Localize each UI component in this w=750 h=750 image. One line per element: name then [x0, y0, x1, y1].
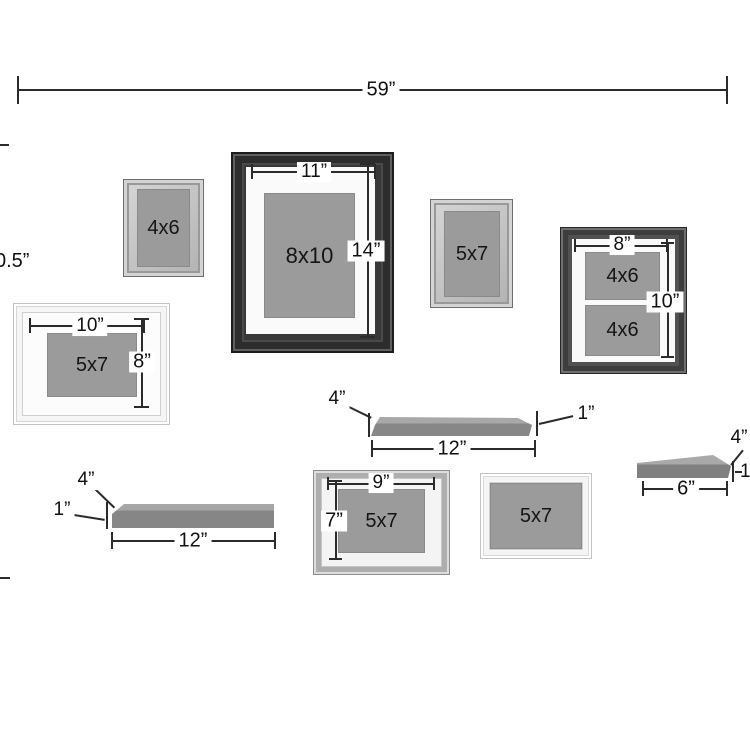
frame-size-label: 5x7 [520, 505, 552, 528]
dim-8in-left-label: 8” [129, 352, 155, 373]
shelf-middle-thickness-leader [539, 415, 574, 425]
shelf-bottom-left-depth-leader [94, 488, 115, 508]
photo-5x7-white-left: 5x7 [47, 333, 137, 397]
overall-width-left-tick [17, 76, 19, 104]
left-edge-cut-tick-upper [0, 144, 9, 146]
dim-9in-label: 9” [369, 473, 394, 493]
shelf-right-depth-label: 4” [727, 428, 750, 448]
shelf-bottom-left-depth-label: 4” [74, 470, 99, 490]
frame-5x7-middle: 5x7 [430, 199, 513, 308]
photo-5x7-gray-bottom: 5x7 [338, 489, 425, 553]
dim-10in-double-bottom-tick [661, 356, 674, 358]
frame-size-label: 5x7 [365, 510, 397, 533]
photo-5x7-middle: 5x7 [444, 211, 500, 297]
dim-8in-left-top-tick [134, 318, 149, 320]
shelf-bottom-left-length-tick-a [111, 532, 113, 549]
shelf-bottom-left-tick [106, 502, 108, 529]
photo-4x6-lower: 4x6 [585, 305, 660, 356]
dim-14in-label: 14” [348, 241, 385, 262]
dim-7in-label: 7” [321, 511, 347, 532]
shelf-right-length-tick-a [642, 481, 644, 496]
shelf-right-thickness-label: 1” [740, 462, 750, 482]
shelf-middle-thickness-label: 1” [574, 404, 599, 424]
shelf-middle-depth-label: 4” [325, 389, 350, 409]
frame-5x7-white-bottom: 5x7 [480, 473, 592, 559]
dim-8in-left-bottom-tick [134, 406, 149, 408]
dim-11in-label: 11” [297, 162, 331, 182]
dim-11in-left-tick [251, 164, 253, 179]
dim-7in-bottom-tick [329, 558, 342, 560]
frame-size-label: 5x7 [76, 354, 108, 377]
shelf-bottom-left-length-label: 12” [175, 531, 212, 552]
shelf-bottom-left-thickness-label: 1” [50, 500, 75, 520]
shelf-right-length-tick-b [726, 481, 728, 496]
dim-9in-tick-b [433, 477, 435, 490]
photo-8x10: 8x10 [264, 193, 355, 318]
shelf-middle-depth-leader [347, 405, 372, 419]
dim-8in-double-left-tick [574, 239, 576, 252]
shelf-bottom-left [112, 504, 274, 528]
overall-width-label: 59” [363, 80, 400, 101]
shelf-middle-length-tick-b [534, 440, 536, 457]
photo-4x6-top-left: 4x6 [137, 189, 190, 267]
frame-4x6-top-left: 4x6 [123, 179, 204, 277]
frame-size-label: 4x6 [147, 217, 179, 240]
dim-11in-right-tick [374, 164, 376, 179]
frame-size-label: 5x7 [456, 243, 488, 266]
overall-width-right-tick [726, 76, 728, 104]
shelf-middle [371, 417, 534, 436]
dim-10in-left-label: 10” [72, 316, 107, 336]
dim-14in-bottom-tick [360, 336, 375, 338]
dim-10in-left-tick-a [29, 318, 31, 333]
gallery-wall-dimension-diagram: 59” 0.5” 4x6 8x10 11” 14” 5x7 4x6 4x6 [0, 0, 750, 750]
dim-8in-double-label: 8” [610, 235, 635, 255]
shelf-bottom-left-length-tick-b [274, 532, 276, 549]
left-edge-cut-tick-lower [0, 577, 10, 579]
shelf-middle-right-tick [536, 411, 538, 436]
dim-10in-double-label: 10” [647, 292, 684, 313]
overall-height-partial-label: 0.5” [0, 251, 29, 272]
shelf-bottom-left-thickness-leader [74, 514, 105, 521]
dim-10in-double-top-tick [661, 242, 674, 244]
frame-size-label: 4x6 [606, 319, 638, 342]
shelf-middle-length-tick-a [371, 440, 373, 457]
photo-5x7-white-bottom: 5x7 [490, 483, 582, 549]
shelf-right-length-label: 6” [673, 479, 699, 500]
dim-10in-left-tick-b [143, 318, 145, 333]
shelf-middle-length-label: 12” [434, 439, 471, 460]
dim-14in-top-tick [360, 163, 375, 165]
shelf-right [634, 455, 731, 478]
frame-size-label: 4x6 [606, 265, 638, 288]
dim-9in-tick-a [327, 477, 329, 490]
dim-7in-top-tick [329, 480, 342, 482]
frame-size-label: 8x10 [286, 243, 334, 269]
